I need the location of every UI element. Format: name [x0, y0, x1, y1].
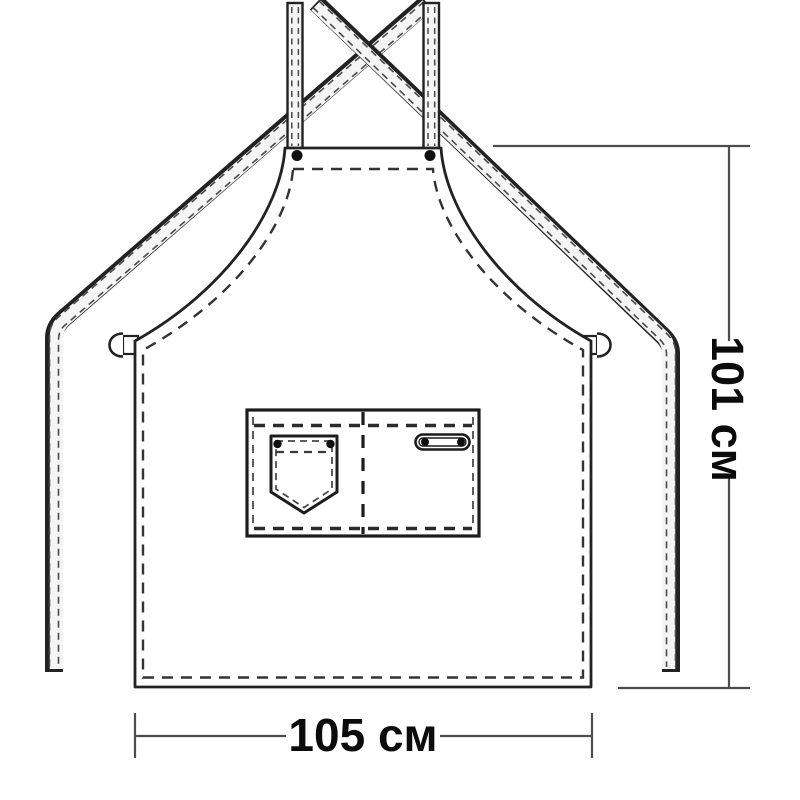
tool-loop-rivet-right [457, 438, 465, 446]
strap-outline [288, 3, 303, 149]
drawing-canvas: 101 см 105 см [0, 0, 800, 800]
width-dimension: 105 см [135, 709, 592, 761]
pocket-panel [247, 410, 479, 536]
ring-loop [597, 334, 611, 357]
shoulder-strap-left [288, 3, 303, 149]
strap-outline [424, 3, 440, 149]
neck-rivet-right [425, 150, 436, 161]
pocket-rivet-right [326, 440, 334, 448]
tool-loop [416, 435, 470, 450]
height-dimension-label: 101 см [702, 336, 753, 482]
tool-loop-rivet-left [421, 438, 429, 446]
width-dimension-label: 105 см [288, 709, 437, 761]
apron-drawing: 101 см 105 см [0, 0, 800, 800]
neck-rivet-left [292, 150, 303, 161]
ring-loop [110, 334, 124, 357]
pocket-rivet-left [273, 440, 281, 448]
shoulder-strap-right [424, 3, 440, 149]
